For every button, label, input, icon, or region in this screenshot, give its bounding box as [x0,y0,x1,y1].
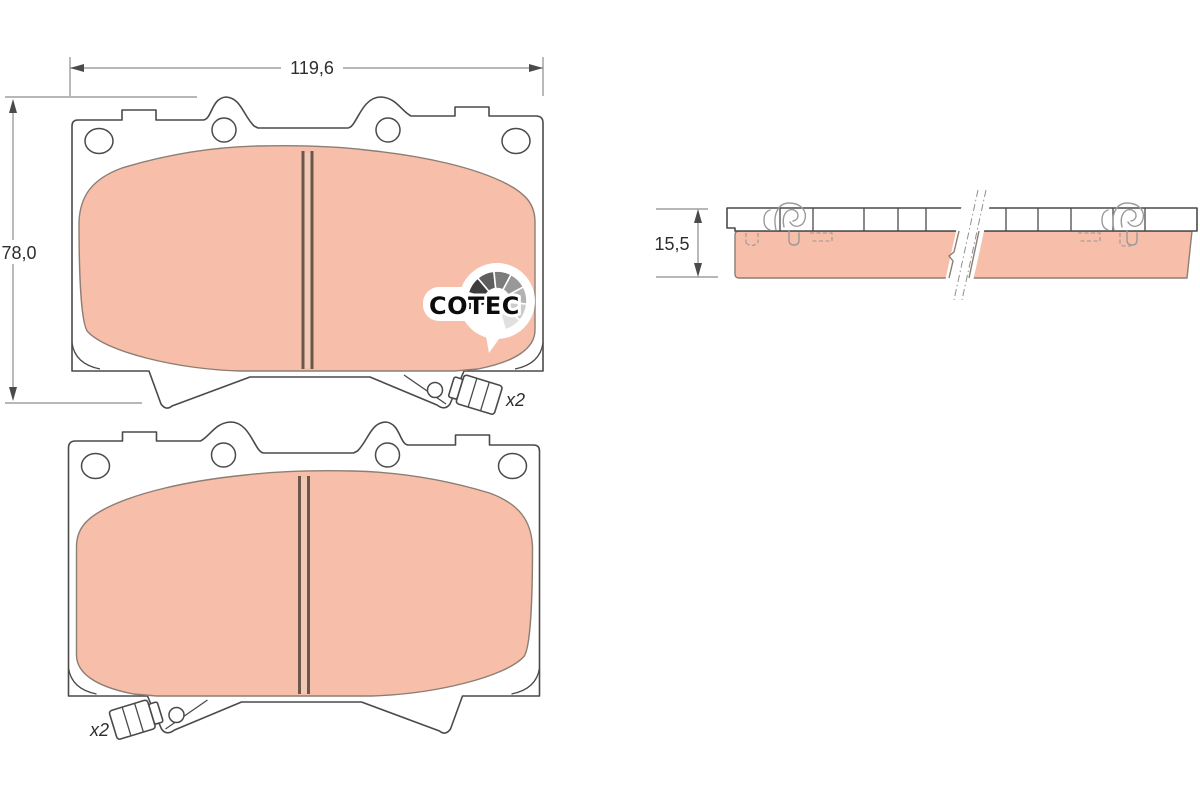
arrowhead-down-icon [694,263,702,277]
dimension-thickness-label: 15,5 [654,234,689,254]
dimension-width: 119,6 [70,57,543,96]
arrowhead-right-icon [529,64,543,72]
arrowhead-up-icon [694,209,702,223]
brake-pad-front-top [72,97,543,415]
brake-pad-front-bottom [69,422,540,740]
dimension-height-label: 78,0 [1,243,36,263]
dimension-width-label: 119,6 [290,58,334,78]
quantity-label-top-pad: x2 [505,390,525,410]
brake-pad-side-view [727,186,1197,304]
arrowhead-up-icon [9,99,17,113]
arrowhead-left-icon [70,64,84,72]
quantity-label-bottom-pad: x2 [89,720,109,740]
arrowhead-down-icon [9,387,17,401]
logo-text: COTEC [429,292,520,320]
brake-pad-technical-drawing: 119,6 78,0 x2 COTEC x2 [0,0,1200,800]
dimension-thickness: 15,5 [654,209,718,277]
technical-drawing-page: 119,6 78,0 x2 COTEC x2 [0,0,1200,800]
